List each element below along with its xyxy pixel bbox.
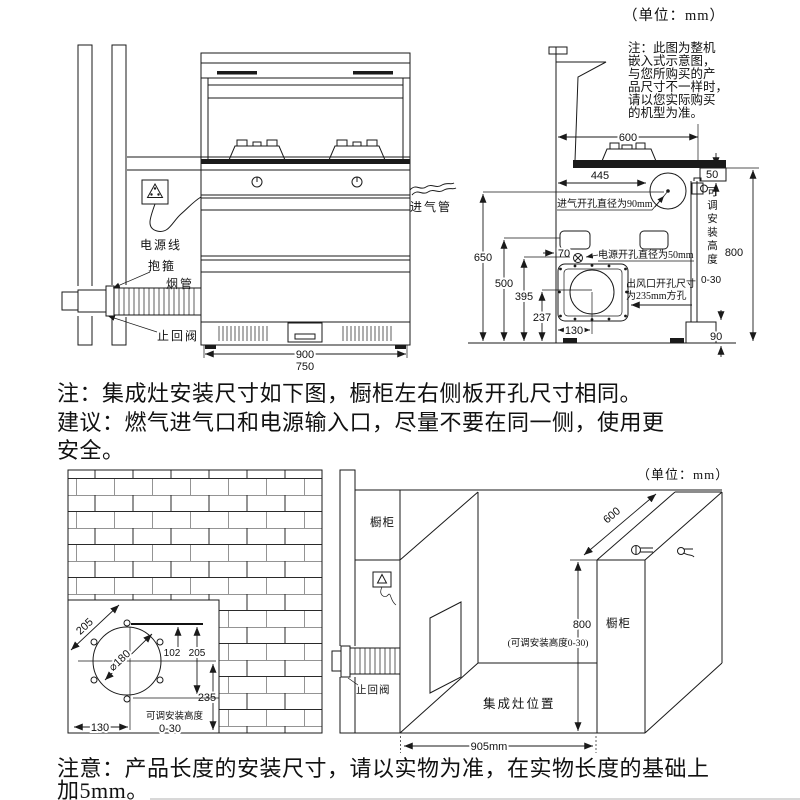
burner-side [602, 143, 656, 161]
dim-237: 237 [533, 312, 551, 324]
dim-90: 90 [710, 331, 722, 343]
side-note-line1: 注：此图为整机 [628, 40, 716, 55]
foot-left [205, 345, 216, 349]
installation-diagram-page: （单位：mm） [0, 0, 800, 800]
mid-note-line3: 安全。 [57, 438, 125, 463]
check-valve-label: 止回阀 [157, 329, 199, 343]
counter-lines [127, 157, 201, 170]
gas-hole-label: 进气开孔直径为90mm [557, 197, 653, 210]
gas-pipe-label: 进气管 [410, 199, 452, 214]
bottom-note-line2: 加5mm。 [57, 778, 149, 800]
dim-445: 445 [591, 170, 609, 182]
unit-label-top: （单位：mm） [623, 7, 725, 24]
flue-pipe-persp [332, 646, 400, 677]
clamp-leader [113, 272, 150, 288]
persp-outlet-icon [373, 572, 396, 605]
handle-hole-1 [560, 231, 590, 249]
wall-hole-view: 205 ⌀180 102 205 235 可调安装高度 0-30 130 [68, 470, 322, 735]
adjustable-height-label-side: 可调安装高度 [704, 186, 719, 267]
counter-slab [573, 160, 726, 168]
dim-800: 800 [725, 247, 743, 259]
bottom-note-line1: 注意：产品长度的安装尺寸，请以实物为准，在实物长度的基础上 [57, 756, 710, 781]
power-hole [574, 254, 583, 263]
dim-70: 70 [558, 248, 570, 260]
anchor-bolt-icon-2 [678, 548, 695, 558]
dim-750: 750 [296, 361, 314, 373]
clamp-label: 抱箍 [148, 258, 176, 273]
check-valve-leader [108, 316, 157, 332]
dim-800-persp: 800 [573, 619, 591, 631]
anchor-bolt-icon-1 [632, 546, 654, 555]
side-note-line3: 与您所购买的产 [628, 66, 716, 81]
vent-grille-left [219, 326, 267, 341]
gas-hole [650, 173, 686, 209]
dim-102: 102 [164, 648, 181, 659]
side-note-line4: 品尺寸不一样时， [628, 79, 728, 94]
air-outlet-label-2: 为235mm方孔 [626, 289, 687, 302]
handle-hole-2 [640, 231, 668, 249]
side-note-line5: 请以您实际购买 [628, 92, 716, 107]
dim-line-600-persp [584, 494, 656, 555]
dim-600-persp: 600 [601, 505, 623, 526]
side-note-line6: 的机型为准。 [628, 105, 703, 120]
hood-slot-right [353, 71, 393, 75]
adj-range-wall: 0-30 [159, 723, 181, 735]
power-outlet-icon [142, 180, 168, 204]
power-hole-label: 电源开孔直径为50mm [598, 248, 694, 261]
power-cord-line [150, 197, 201, 231]
side-note-line2: 嵌入式示意图， [628, 53, 716, 68]
wall-column [340, 470, 355, 733]
check-valve-label-persp: 止回阀 [356, 683, 391, 696]
dim-50: 50 [706, 169, 718, 181]
bottom-note: 注意：产品长度的安装尺寸，请以实物为准，在实物长度的基础上 加5mm。 [57, 756, 710, 800]
dim-205v: 205 [189, 648, 206, 659]
foot-right [395, 345, 406, 349]
dim-900: 900 [296, 349, 314, 361]
dim-130-wall: 130 [91, 722, 109, 734]
vent-grille-right [343, 326, 391, 341]
adj-range-side: 0-30 [701, 275, 721, 286]
air-outlet-label-1: 出风口开孔尺寸 [626, 277, 696, 290]
side-note: 注：此图为整机 嵌入式示意图， 与您所购买的产 品尺寸不一样时， 请以您实际购买… [628, 40, 728, 120]
dim-130-side: 130 [565, 325, 583, 337]
flue-label: 烟管 [166, 276, 194, 291]
back-wall-hole [430, 602, 461, 693]
cabinet-right-label: 橱柜 [606, 616, 631, 630]
dim-905: 905mm [471, 741, 508, 753]
dim-395: 395 [515, 291, 533, 303]
adj-height-wall: 可调安装高度 [146, 710, 204, 722]
front-view: 电源线 抱箍 烟管 止回阀 进气管 900 750 [62, 45, 456, 373]
cabinet-left-label: 橱柜 [370, 515, 395, 529]
unit-label-bottom: （单位：mm） [637, 467, 729, 482]
adj-note-persp: (可调安装高度0-30) [508, 637, 589, 649]
dim-650: 650 [474, 252, 492, 264]
perspective-view: 橱柜 止回阀 橱柜 [332, 470, 722, 753]
hood-slot-left [217, 71, 257, 75]
dim-600: 600 [619, 132, 637, 144]
mid-note-line2: 建议：燃气进气口和电源输入口，尽量不要在同一侧，使用更 [57, 410, 665, 435]
air-outlet-hole [558, 264, 628, 321]
stove-front [201, 53, 410, 349]
gas-pipe-icon [410, 183, 456, 195]
installation-diagram: （单位：mm） [0, 0, 800, 800]
dim-500: 500 [495, 278, 513, 290]
mid-note-line1: 注：集成灶安装尺寸如下图，橱柜左右侧板开孔尺寸相同。 [57, 381, 642, 406]
stove-position-label: 集成灶位置 [483, 696, 556, 711]
power-cord-label: 电源线 [140, 238, 182, 252]
mid-note: 注：集成灶安装尺寸如下图，橱柜左右侧板开孔尺寸相同。 建议：燃气进气口和电源输入… [57, 381, 665, 463]
